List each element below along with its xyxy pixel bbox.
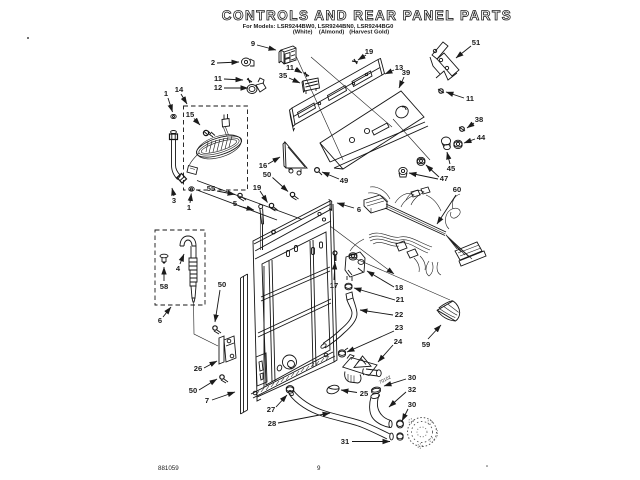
svg-text:9: 9 [317,465,321,472]
svg-text:28: 28 [268,419,276,428]
svg-text:50: 50 [218,280,226,289]
svg-text:44: 44 [477,133,486,142]
svg-text:26: 26 [194,364,202,373]
svg-text:11: 11 [214,74,223,83]
svg-text:17: 17 [330,281,338,290]
svg-text:14: 14 [175,85,184,94]
svg-text:39: 39 [402,68,410,77]
svg-text:9: 9 [251,39,255,48]
svg-text:18: 18 [395,283,403,292]
svg-text:55: 55 [207,184,216,193]
svg-text:3: 3 [172,196,176,205]
svg-text:23: 23 [395,323,403,332]
svg-text:49: 49 [340,176,348,185]
svg-text:881059: 881059 [158,465,179,472]
svg-text:50: 50 [263,170,271,179]
svg-text:21: 21 [396,295,405,304]
svg-text:25: 25 [360,389,369,398]
svg-text:31: 31 [341,437,350,446]
svg-text:7: 7 [205,396,209,405]
svg-text:27: 27 [267,405,275,414]
svg-text:22: 22 [395,310,403,319]
svg-text:38: 38 [475,115,483,124]
svg-text:59: 59 [422,340,430,349]
svg-text:58: 58 [160,282,168,291]
svg-text:11: 11 [466,94,475,103]
svg-text:(White) (Almond) (Harvest: (White) (Almond) (Harvest Gold) [293,30,389,36]
svg-text:30: 30 [408,400,416,409]
svg-text:30: 30 [408,373,416,382]
svg-text:32: 32 [408,385,416,394]
svg-text:16: 16 [259,161,267,170]
svg-text:6: 6 [158,316,162,325]
svg-text:60: 60 [453,185,461,194]
svg-text:2: 2 [211,58,215,67]
svg-text:35: 35 [279,71,288,80]
svg-text:19: 19 [253,183,261,192]
svg-text:24: 24 [394,337,403,346]
svg-text:45: 45 [447,164,456,173]
svg-text:11: 11 [286,63,295,72]
svg-text:CONTROLS AND REAR PANEL PARTS: CONTROLS AND REAR PANEL PARTS [222,8,513,23]
svg-text:47: 47 [440,174,448,183]
svg-text:6: 6 [357,205,361,214]
svg-text:19: 19 [365,47,373,56]
svg-text:51: 51 [472,38,481,47]
svg-text:12: 12 [214,83,222,92]
svg-text:15: 15 [186,110,195,119]
svg-text:50: 50 [189,386,197,395]
